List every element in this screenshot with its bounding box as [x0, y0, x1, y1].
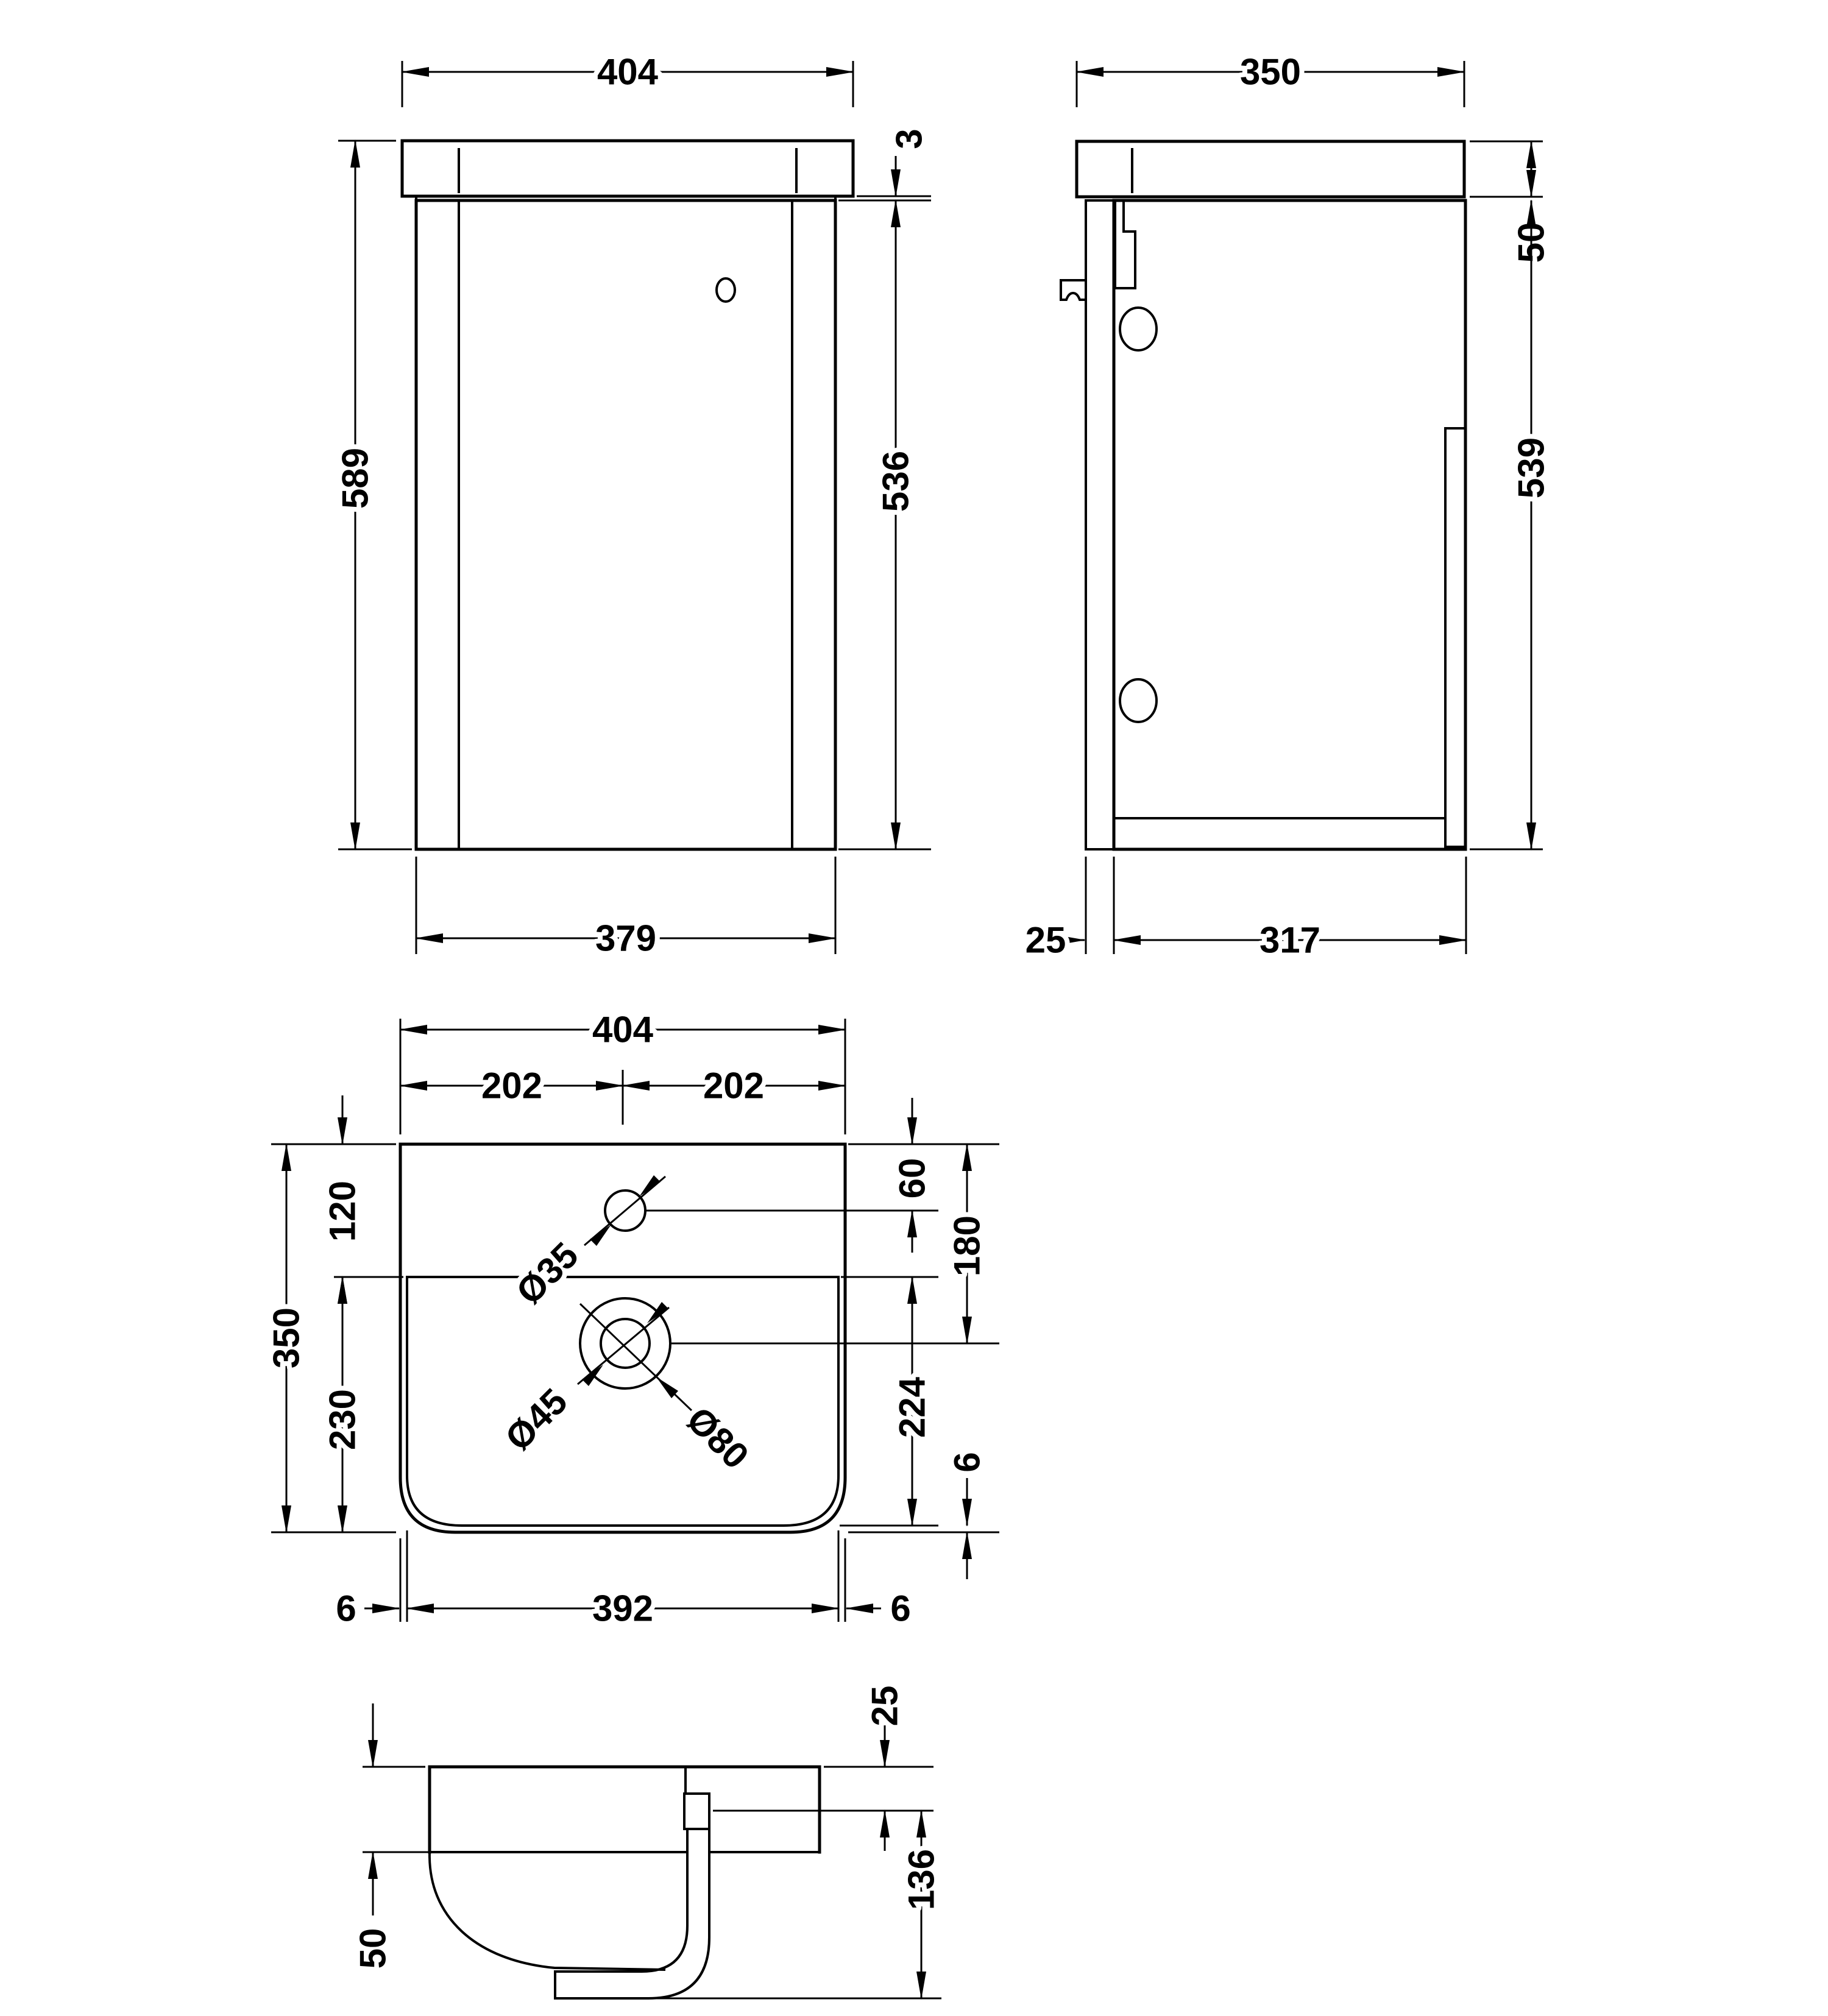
dim-plan-bowl-depth: 224 — [840, 1277, 938, 1526]
dim-plan-rim-front: 6 — [848, 1452, 999, 1579]
hinge-hole-lower — [1120, 679, 1157, 722]
dim-front-overall-height: 589 — [335, 141, 413, 849]
dim-label: 392 — [592, 1588, 653, 1629]
dim-label: 350 — [266, 1307, 307, 1368]
dim-label: 317 — [1259, 920, 1320, 961]
waste-outlet-fitting — [684, 1794, 709, 1829]
wall-bracket — [1061, 280, 1086, 300]
dim-label: 202 — [703, 1066, 764, 1106]
waste-trap-inner — [555, 1829, 687, 1972]
bowl-underside-curve — [430, 1852, 664, 1970]
dim-side-worktop-height: 50 — [1470, 141, 1552, 263]
dim-plan-bottom: 6 392 6 — [336, 1530, 910, 1629]
dim-front-body-height: 536 — [838, 200, 931, 849]
dim-plan-waste-offset: 180 — [671, 1144, 999, 1343]
back-hanging-rail — [1445, 428, 1465, 847]
dim-label: 25 — [865, 1686, 905, 1727]
dim-label: 25 — [1026, 920, 1066, 961]
arrow — [582, 1365, 603, 1386]
dim-label: 120 — [322, 1181, 363, 1242]
dim-label: 50 — [353, 1928, 394, 1969]
side-panel — [1114, 200, 1465, 849]
dim-side-door-thickness: 25 — [1026, 857, 1114, 961]
dim-section-underside-height: 136 — [652, 1811, 942, 1998]
dim-label: 202 — [481, 1066, 542, 1106]
dim-label: 60 — [892, 1158, 933, 1199]
dim-label: 404 — [592, 1010, 654, 1050]
front-view: 404 589 3 536 379 — [335, 52, 932, 959]
technical-drawing-page: 404 589 3 536 379 — [0, 0, 1828, 2016]
door-handle-hole — [717, 278, 735, 302]
dim-label: 136 — [901, 1849, 942, 1910]
dim-label: 404 — [597, 52, 659, 93]
door-panel-side — [1086, 200, 1114, 849]
dim-section-rim-height: 50 — [353, 1703, 433, 1968]
arrow — [590, 1225, 611, 1246]
dim-plan-half-widths: 202 202 — [400, 1066, 845, 1125]
worktop-front — [402, 141, 853, 196]
bowl-outline — [407, 1277, 838, 1526]
dim-label: 6 — [947, 1452, 988, 1472]
section-view: 50 25 136 — [353, 1686, 942, 1998]
dim-label: 6 — [336, 1588, 356, 1629]
leader-line — [580, 1304, 706, 1424]
dim-label: 6 — [890, 1588, 910, 1629]
dim-label: 539 — [1511, 437, 1552, 498]
dim-label: 230 — [322, 1389, 363, 1450]
dim-plan-back-ledge: 120 — [322, 1095, 404, 1323]
dim-label: 3 — [889, 129, 930, 149]
dim-label: 379 — [595, 918, 656, 959]
dim-label: 224 — [892, 1376, 933, 1438]
hanging-bracket — [1115, 200, 1135, 288]
dim-side-body-height: 539 — [1470, 200, 1552, 849]
dim-label: 350 — [1240, 52, 1301, 93]
plan-view: Ø35 Ø45 Ø80 404 202 202 — [266, 1010, 1000, 1629]
dim-label: 536 — [876, 451, 916, 512]
worktop-side — [1077, 141, 1464, 197]
dia-label: Ø45 — [497, 1381, 575, 1459]
basin-outline — [400, 1144, 845, 1532]
dim-label: 589 — [335, 448, 376, 509]
vanity-unit-technical-drawing: 404 589 3 536 379 — [0, 0, 1828, 2016]
dim-front-top-width: 404 — [402, 52, 853, 108]
hinge-hole-upper — [1120, 308, 1157, 350]
side-view: 350 50 539 25 317 — [1026, 52, 1552, 961]
dim-plan-front-zone: 230 — [322, 1277, 363, 1532]
dia-label: Ø35 — [508, 1234, 586, 1312]
dim-side-top-depth: 350 — [1077, 52, 1464, 108]
cabinet-body-front — [416, 200, 835, 849]
dim-side-body-depth: 317 — [1114, 857, 1466, 961]
arrow — [639, 1175, 661, 1197]
dim-label: 180 — [947, 1215, 988, 1276]
dim-front-bottom-width: 379 — [416, 857, 835, 959]
leader-tap-hole: Ø35 — [508, 1175, 665, 1312]
